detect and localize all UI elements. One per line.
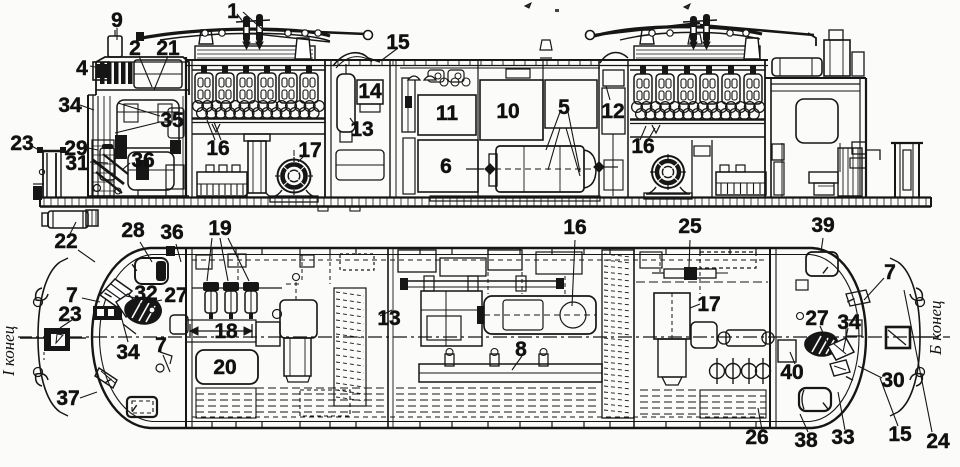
svg-text:27: 27	[805, 307, 828, 330]
svg-text:38: 38	[794, 429, 818, 452]
svg-text:21: 21	[156, 37, 180, 60]
svg-text:I конец: I конец	[0, 326, 18, 377]
svg-text:36: 36	[160, 221, 183, 244]
svg-text:40: 40	[780, 361, 803, 384]
svg-text:34: 34	[116, 341, 140, 364]
svg-text:31: 31	[65, 152, 89, 175]
svg-text:22: 22	[54, 230, 77, 253]
svg-text:30: 30	[881, 369, 904, 392]
svg-text:34: 34	[837, 311, 861, 334]
svg-text:19: 19	[208, 217, 231, 240]
svg-text:24: 24	[926, 430, 950, 453]
svg-text:9: 9	[111, 9, 123, 32]
svg-text:12: 12	[601, 100, 624, 123]
svg-text:28: 28	[121, 219, 145, 242]
svg-text:16: 16	[631, 135, 654, 158]
svg-text:18: 18	[214, 320, 238, 343]
svg-text:33: 33	[831, 426, 854, 449]
svg-text:Б конец: Б конец	[926, 300, 945, 356]
svg-text:35: 35	[160, 109, 184, 132]
svg-text:37: 37	[56, 387, 79, 410]
svg-text:13: 13	[377, 307, 400, 330]
svg-text:14: 14	[358, 80, 382, 103]
svg-text:26: 26	[745, 426, 768, 449]
svg-text:4: 4	[76, 57, 88, 80]
svg-text:16: 16	[563, 216, 586, 239]
svg-text:25: 25	[678, 215, 702, 238]
svg-text:11: 11	[436, 102, 459, 125]
svg-text:23: 23	[58, 303, 81, 326]
svg-text:15: 15	[386, 31, 410, 54]
svg-text:8: 8	[515, 338, 527, 361]
svg-text:16: 16	[206, 137, 229, 160]
svg-text:5: 5	[558, 96, 570, 119]
svg-text:27: 27	[164, 284, 187, 307]
svg-text:36: 36	[131, 149, 154, 172]
svg-text:39: 39	[811, 214, 834, 237]
svg-text:10: 10	[496, 100, 519, 123]
svg-text:15: 15	[888, 423, 912, 446]
svg-text:7: 7	[884, 261, 896, 284]
svg-text:17: 17	[697, 293, 720, 316]
svg-text:17: 17	[298, 139, 321, 162]
svg-text:6: 6	[440, 155, 452, 178]
svg-text:20: 20	[213, 356, 236, 379]
svg-text:32: 32	[134, 282, 157, 305]
svg-text:23: 23	[10, 132, 33, 155]
svg-text:34: 34	[58, 94, 82, 117]
svg-text:1: 1	[227, 0, 239, 23]
svg-text:7: 7	[155, 334, 167, 357]
svg-text:13: 13	[350, 118, 373, 141]
svg-text:2: 2	[129, 37, 141, 60]
